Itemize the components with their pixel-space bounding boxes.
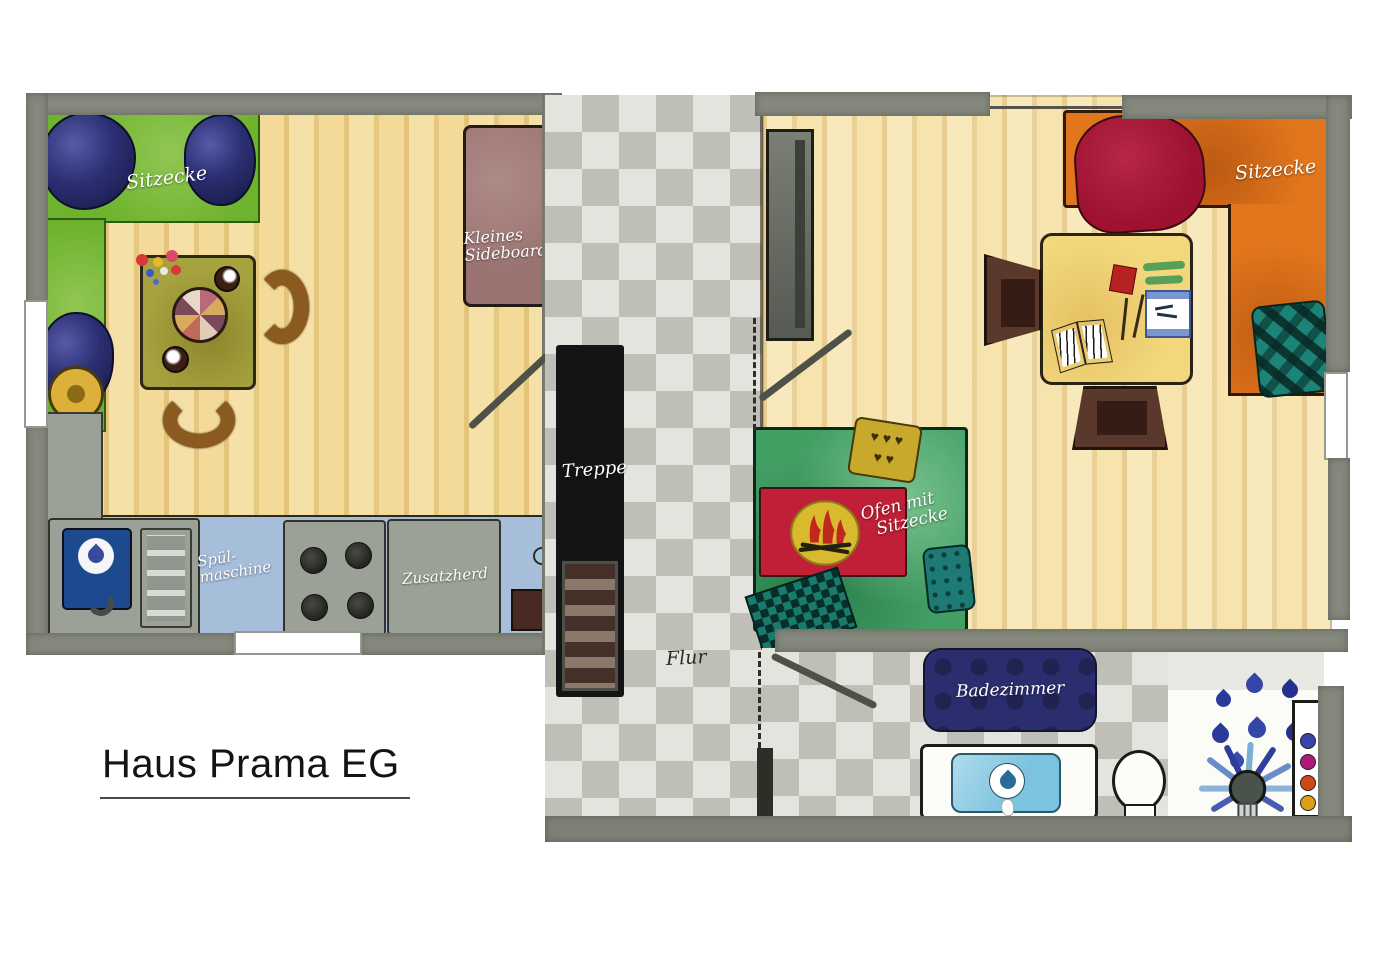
wash-basin bbox=[951, 753, 1061, 813]
bathroom-label: Badezimmer bbox=[956, 679, 1065, 701]
pencil bbox=[1132, 294, 1144, 338]
water-drop-icon bbox=[85, 544, 108, 567]
window bbox=[24, 300, 48, 428]
calendar-mark bbox=[1157, 313, 1177, 319]
wall-post bbox=[757, 748, 773, 820]
wall bbox=[1318, 686, 1344, 832]
staircase bbox=[556, 345, 624, 697]
wall bbox=[26, 93, 562, 115]
shelf-item bbox=[1300, 775, 1316, 791]
wall bbox=[1326, 96, 1350, 372]
window bbox=[1324, 372, 1348, 460]
stool-center bbox=[67, 385, 85, 403]
wardrobe bbox=[766, 129, 814, 341]
basin-drain bbox=[989, 763, 1025, 799]
door-opening-dashes bbox=[753, 318, 756, 430]
counter-column bbox=[43, 412, 103, 522]
shelf-item bbox=[1300, 795, 1316, 811]
page-title: Haus Prama EG bbox=[100, 742, 410, 799]
stove-burner bbox=[345, 542, 372, 569]
water-drop-icon bbox=[997, 770, 1020, 793]
shelf-item bbox=[1300, 754, 1316, 770]
sink-basin-swirl bbox=[78, 538, 114, 574]
pens bbox=[1143, 261, 1185, 272]
dining-chair bbox=[255, 270, 309, 344]
dining-chair bbox=[163, 392, 235, 448]
bench-cushion bbox=[184, 114, 256, 206]
bath-mat: Badezimmer bbox=[923, 648, 1097, 732]
window-line bbox=[990, 106, 1122, 109]
desk bbox=[1040, 233, 1193, 385]
stairs-label: Treppe bbox=[561, 458, 627, 482]
open-book bbox=[1051, 316, 1120, 375]
pencil bbox=[1121, 298, 1128, 340]
desk-chair bbox=[1072, 386, 1168, 450]
toilet bbox=[1112, 750, 1166, 812]
flower-bouquet bbox=[136, 254, 148, 266]
shower-head-icon bbox=[1190, 740, 1305, 826]
hall-label: Flur bbox=[665, 647, 707, 670]
stove-burner bbox=[347, 592, 374, 619]
stove-burner bbox=[301, 594, 328, 621]
pens bbox=[1145, 275, 1183, 285]
stove-burner bbox=[300, 547, 327, 574]
wall bbox=[26, 633, 236, 655]
dish-rack bbox=[140, 528, 192, 628]
wall bbox=[1328, 458, 1350, 620]
wall bbox=[26, 93, 48, 305]
bathroom-sink-unit bbox=[920, 744, 1098, 820]
soap bbox=[1001, 799, 1014, 816]
calendar-strip bbox=[1147, 292, 1189, 299]
cup bbox=[214, 266, 240, 292]
sideboard-label: Kleines Sideboard bbox=[463, 224, 548, 264]
desk-chair-seat bbox=[1097, 401, 1147, 435]
dot-cushion bbox=[922, 544, 977, 615]
pie bbox=[172, 287, 228, 343]
wall bbox=[755, 92, 990, 116]
sticky-note bbox=[1109, 264, 1137, 295]
wardrobe-panel bbox=[795, 140, 805, 328]
calendar bbox=[1145, 290, 1191, 338]
sofa-blanket bbox=[1071, 110, 1209, 237]
window bbox=[234, 631, 362, 655]
wall bbox=[26, 425, 48, 655]
wall bbox=[360, 633, 560, 655]
wall bbox=[545, 816, 1352, 842]
heart-cushion: ♥ ♥ ♥ ♥ ♥ bbox=[847, 416, 923, 484]
door-opening-dashes bbox=[758, 652, 761, 748]
sofa-cushion-teal bbox=[1250, 299, 1333, 398]
calendar-strip bbox=[1147, 329, 1189, 336]
desk-chair-seat bbox=[1001, 279, 1035, 327]
sideboard: Kleines Sideboard bbox=[463, 125, 549, 307]
stove bbox=[283, 520, 386, 636]
floor-plan: Sitzecke Kleines Sideboard Spül- maschin… bbox=[0, 0, 1380, 980]
cup bbox=[162, 346, 189, 373]
fire-icon bbox=[788, 496, 862, 570]
shelf-item bbox=[1300, 733, 1316, 749]
stair-steps bbox=[562, 561, 618, 691]
wall bbox=[1122, 95, 1352, 119]
calendar-mark bbox=[1155, 304, 1173, 310]
